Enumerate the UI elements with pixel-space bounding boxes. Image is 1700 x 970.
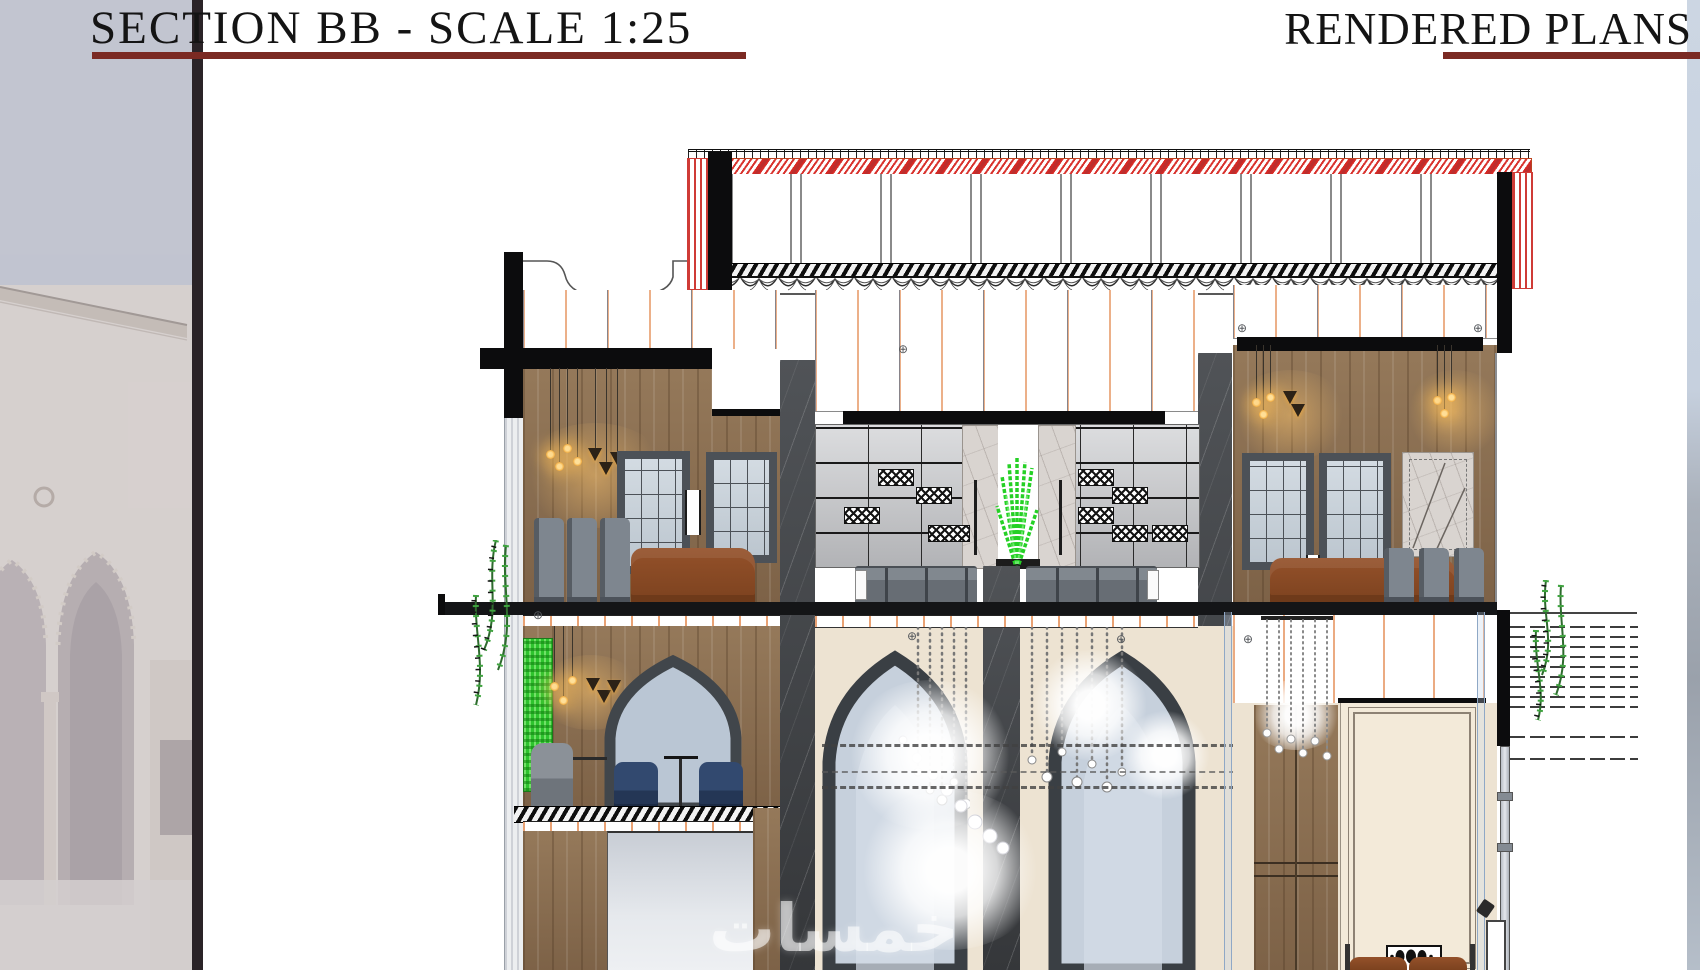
booth-seating-left	[855, 566, 977, 605]
pendant-light	[568, 676, 577, 685]
survey-marker-icon: ⊕	[1473, 322, 1483, 334]
pendant-light	[550, 682, 559, 691]
window	[706, 452, 777, 563]
watermark: خمسات	[688, 890, 980, 967]
left-divider-bar	[192, 0, 203, 970]
shelf-marble-pilaster-right	[1038, 425, 1076, 569]
wine-rack	[1112, 487, 1148, 504]
light-glow	[1230, 370, 1350, 460]
clerestory-left	[523, 290, 780, 350]
pendant-light	[1259, 410, 1268, 419]
survey-marker-icon: ⊕	[907, 630, 917, 642]
pendant-cord	[595, 368, 596, 448]
title-underline-left	[92, 52, 746, 59]
header-beam-center	[843, 411, 1165, 424]
pendant-light	[555, 462, 564, 471]
green-plant-center	[994, 438, 1040, 570]
pendant-cord	[559, 368, 560, 462]
dining-chair	[534, 518, 564, 603]
presentation-sheet: ⊕ ⊕ ⊕ ⊕ ⊕ ⊕ ⊕ خمسات SECTION BB - SCALE 1…	[0, 0, 1700, 970]
console-table	[573, 757, 607, 811]
pipe-joint	[1497, 792, 1513, 801]
cafe-table	[664, 756, 698, 811]
survey-marker-icon: ⊕	[1237, 322, 1247, 334]
pendant-light	[573, 457, 582, 466]
pendant-lamp	[588, 448, 602, 461]
clerestory-right	[1233, 285, 1497, 339]
hanging-plant-right	[1516, 580, 1588, 725]
wine-rack	[1112, 525, 1148, 542]
crystal-chandelier	[1261, 616, 1333, 766]
armchair-navy	[614, 762, 658, 808]
pendant-cord	[554, 626, 555, 682]
header-beam-left	[480, 348, 712, 369]
side-table	[855, 570, 867, 600]
headboard	[1409, 957, 1467, 970]
radiator	[1486, 920, 1506, 970]
upper-left-ceiling-step	[712, 349, 780, 409]
roof-truss-space	[708, 174, 1497, 264]
door-leaf-lines	[685, 490, 701, 535]
pendant-cord	[1270, 345, 1271, 394]
page-subtitle: RENDERED PLANS	[1284, 3, 1692, 55]
parapet-wall	[504, 252, 523, 418]
shelf-door-rail	[1059, 480, 1062, 555]
wine-rack	[1152, 525, 1188, 542]
survey-marker-icon: ⊕	[533, 609, 543, 621]
pendant-light	[1447, 393, 1456, 402]
window-muntins	[1327, 461, 1383, 562]
pendant-cord	[572, 626, 573, 678]
wine-rack	[844, 507, 880, 524]
pendant-light	[1252, 398, 1261, 407]
pendant-light	[1433, 396, 1442, 405]
window-muntins	[1250, 461, 1306, 562]
table-stem	[679, 759, 682, 807]
headboard	[1349, 957, 1407, 970]
upper-left-step-beam	[712, 409, 780, 416]
pipe-joint	[1497, 843, 1513, 852]
lounge-chair	[531, 743, 573, 808]
wall-panel-frame	[1353, 712, 1471, 964]
pendant-lamp	[1283, 391, 1297, 404]
pendant-light	[546, 450, 555, 459]
pendant-cord	[1437, 345, 1438, 396]
survey-marker-icon: ⊕	[1116, 633, 1126, 645]
upper-floor-slab	[438, 602, 1497, 615]
pendant-lamp	[1291, 404, 1305, 417]
wine-rack	[878, 469, 914, 486]
marble-column-left	[780, 360, 815, 970]
right-wall-cut	[1497, 610, 1510, 746]
roof-edge-red-left	[687, 158, 710, 290]
dining-chair	[567, 518, 597, 603]
pendant-cord	[577, 368, 578, 457]
door-post	[1345, 944, 1350, 970]
roof-edge-red-right	[1512, 172, 1533, 289]
paneled-wall	[1340, 703, 1485, 970]
dining-chair	[1384, 548, 1414, 603]
pendant-cord	[617, 368, 618, 452]
title-underline-right	[1443, 52, 1700, 59]
survey-marker-icon: ⊕	[898, 343, 908, 355]
pendant-light	[559, 696, 568, 705]
railing-dash-line	[822, 786, 1235, 789]
dining-chair	[600, 518, 630, 603]
light-glow	[1405, 370, 1505, 455]
balcony-lip	[438, 594, 445, 615]
railing-dash-line	[822, 771, 1235, 773]
page-title: SECTION BB - SCALE 1:25	[90, 1, 692, 55]
wine-rack	[928, 525, 970, 542]
dining-chair	[1419, 548, 1449, 603]
armchair-navy	[699, 762, 743, 808]
pendant-cord	[606, 368, 607, 462]
wine-rack	[1078, 469, 1114, 486]
pendant-cord	[1444, 345, 1445, 409]
booth-seating-right	[1026, 566, 1157, 605]
wine-rack	[916, 487, 952, 504]
glass-door-edge	[1224, 612, 1232, 970]
pendant-cord	[1451, 345, 1452, 393]
survey-marker-icon: ⊕	[1243, 633, 1253, 645]
wine-rack	[1078, 507, 1114, 524]
right-reference-photo	[1687, 0, 1700, 970]
ceiling-spotlight-band	[815, 615, 1198, 628]
pendant-cord	[563, 626, 564, 696]
pendant-light	[563, 444, 572, 453]
pendant-cord	[550, 368, 551, 450]
window-muntins	[714, 460, 769, 555]
lower-left-wall	[523, 831, 607, 970]
railing-dash-line	[822, 744, 1235, 747]
section-drawing: ⊕ ⊕ ⊕ ⊕ ⊕ ⊕ ⊕	[0, 0, 1700, 970]
clerestory-center	[815, 290, 1198, 412]
hanging-plant-left	[446, 540, 518, 720]
header-beam-right	[1237, 337, 1483, 351]
pendant-light	[1266, 393, 1275, 402]
marble-art-panel	[1402, 452, 1474, 557]
dining-chair	[1454, 548, 1484, 603]
window	[1242, 453, 1314, 570]
leather-sofa	[631, 548, 755, 603]
door-post	[1470, 944, 1475, 970]
pendant-cord	[1263, 345, 1264, 410]
pendant-cord	[1256, 345, 1257, 398]
window	[1319, 453, 1391, 570]
shelf-door-rail	[974, 480, 977, 555]
pendant-cord	[567, 368, 568, 444]
side-table	[1147, 570, 1159, 600]
roof-column-right	[1497, 172, 1512, 353]
marble-veins	[1403, 453, 1473, 556]
pendant-light	[1440, 409, 1449, 418]
